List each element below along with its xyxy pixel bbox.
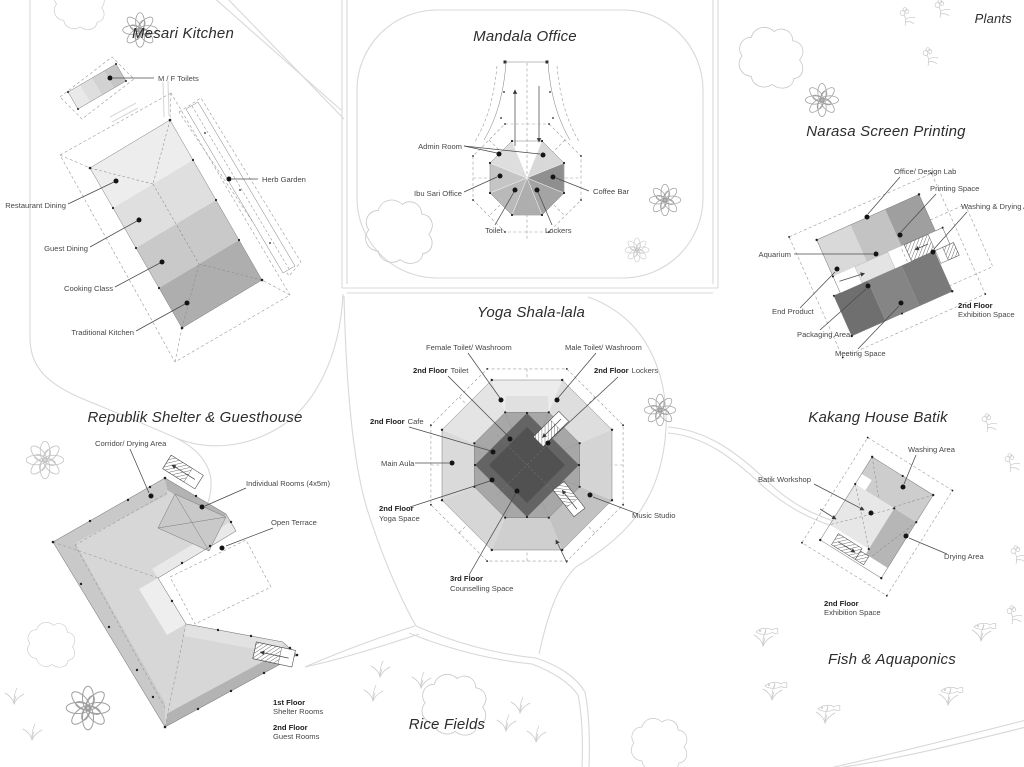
section-title-fish-aquaponics: Fish & Aquaponics	[828, 651, 956, 668]
svg-text:Washing & Drying Area: Washing & Drying Area	[961, 202, 1024, 211]
svg-text:Cooking Class: Cooking Class	[64, 284, 113, 293]
svg-text:2nd FloorLockers: 2nd FloorLockers	[594, 366, 658, 375]
svg-text:Main Aula: Main Aula	[381, 459, 415, 468]
svg-text:Guest Dining: Guest Dining	[44, 244, 88, 253]
svg-text:M / F Toilets: M / F Toilets	[158, 74, 199, 83]
svg-text:2nd Floor: 2nd Floor	[958, 301, 993, 310]
svg-text:Shelter Rooms: Shelter Rooms	[273, 707, 323, 716]
section-title-narasa: Narasa Screen Printing	[806, 123, 966, 140]
svg-text:Corridor/ Drying Area: Corridor/ Drying Area	[95, 439, 167, 448]
svg-text:Meeting Space: Meeting Space	[835, 349, 886, 358]
svg-text:1st Floor: 1st Floor	[273, 698, 305, 707]
section-title-mandala: Mandala Office	[473, 28, 577, 45]
svg-text:Guest Rooms: Guest Rooms	[273, 732, 320, 741]
svg-text:Lockers: Lockers	[545, 226, 572, 235]
svg-text:Batik Workshop: Batik Workshop	[758, 475, 811, 484]
svg-text:Music Studio: Music Studio	[632, 511, 675, 520]
section-title-kakang: Kakang House Batik	[808, 409, 949, 426]
svg-text:2nd FloorCafe: 2nd FloorCafe	[370, 417, 424, 426]
section-title-yoga: Yoga Shala-lala	[477, 304, 585, 321]
svg-text:Open Terrace: Open Terrace	[271, 518, 317, 527]
svg-text:Herb Garden: Herb Garden	[262, 175, 306, 184]
svg-text:Admin Room: Admin Room	[418, 142, 462, 151]
site-plan-page: Mesari Kitchen M / F Toilets Herb Garden…	[0, 0, 1024, 767]
svg-text:2nd Floor: 2nd Floor	[379, 504, 414, 513]
site-plan-diagram: Mesari Kitchen M / F Toilets Herb Garden…	[0, 0, 1024, 767]
svg-text:2nd FloorToilet: 2nd FloorToilet	[413, 366, 469, 375]
svg-text:Coffee Bar: Coffee Bar	[593, 187, 630, 196]
svg-text:Packaging Area: Packaging Area	[797, 330, 851, 339]
svg-text:Ibu Sari Office: Ibu Sari Office	[414, 189, 462, 198]
svg-text:Yoga Space: Yoga Space	[379, 514, 420, 523]
section-title-rice-fields: Rice Fields	[409, 716, 486, 733]
svg-text:Drying Area: Drying Area	[944, 552, 984, 561]
svg-text:Traditional Kitchen: Traditional Kitchen	[71, 328, 134, 337]
svg-text:2nd Floor: 2nd Floor	[824, 599, 859, 608]
svg-text:Male Toilet/ Washroom: Male Toilet/ Washroom	[565, 343, 642, 352]
svg-text:Female Toilet/ Washroom: Female Toilet/ Washroom	[426, 343, 512, 352]
section-title-republik: Republik Shelter & Guesthouse	[87, 409, 302, 426]
svg-text:Counselling Space: Counselling Space	[450, 584, 513, 593]
svg-text:Washing Area: Washing Area	[908, 445, 956, 454]
section-title-mesari: Mesari Kitchen	[132, 25, 234, 42]
svg-text:Exhibition Space: Exhibition Space	[824, 608, 881, 617]
svg-text:Exhibition Space: Exhibition Space	[958, 310, 1015, 319]
svg-text:3rd Floor: 3rd Floor	[450, 574, 483, 583]
svg-text:Restaurant Dining: Restaurant Dining	[5, 201, 66, 210]
svg-text:2nd Floor: 2nd Floor	[273, 723, 308, 732]
section-title-plants: Plants	[975, 11, 1013, 26]
svg-text:Individual Rooms (4x5m): Individual Rooms (4x5m)	[246, 479, 330, 488]
svg-text:End Product: End Product	[772, 307, 815, 316]
svg-text:Toilet: Toilet	[485, 226, 504, 235]
svg-text:Office/ Design Lab: Office/ Design Lab	[894, 167, 956, 176]
svg-text:Aquarium: Aquarium	[759, 250, 792, 259]
svg-text:Printing Space: Printing Space	[930, 184, 979, 193]
